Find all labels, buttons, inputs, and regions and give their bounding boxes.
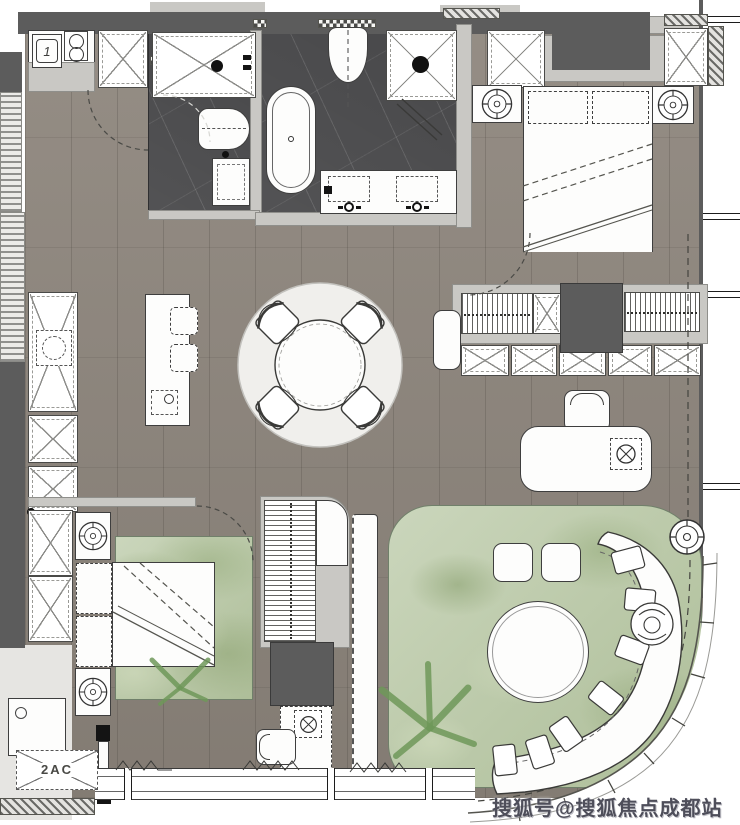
entry-closet [98,30,148,88]
window-left-upper [0,92,22,212]
kitchen-sink-basin: 1 [36,39,58,63]
bed1-closet-left [487,30,545,88]
window-post [124,768,132,800]
faucet-handle-icon [406,206,411,209]
bed-2 [112,562,215,667]
wall-left-lower [0,362,25,648]
wall-hatch-top-mid [443,8,500,19]
bed2-wardrobe [28,576,73,642]
wall-bath2-east [456,24,472,228]
ac-unit-box: 2AC [16,750,98,790]
island-stool [170,344,198,372]
ceiling-lamp-icon [481,88,513,120]
toilet-1-centerline [202,128,246,129]
wall-left-upper [0,52,22,92]
window-mullion [703,213,740,220]
ceiling-lamp-icon [78,521,108,551]
bathtub-drain [288,136,294,142]
niche-check-strip [253,19,267,28]
bed1-pillow [528,91,588,124]
faucet-icon [344,202,354,212]
desk2-stool [256,729,296,765]
wall-hatch-bed1-top [664,14,708,26]
shower-1-drain [211,60,223,72]
kitchen-sink-label: 1 [43,45,50,58]
ottoman [541,543,581,582]
wall-bath1-south [148,210,260,220]
shower-1-valve-icon [243,55,251,60]
door-post [96,725,110,741]
ceiling-lamp-icon [78,677,108,707]
window-post [425,768,433,800]
bidet-inner [217,164,245,200]
faucet-icon [412,202,422,212]
vanity-sink-left [328,176,370,202]
tv-cabinet [560,283,623,353]
ac-unit-label: 2AC [38,763,76,777]
vanity-bench [8,698,66,756]
wall-hatch-bed1-right [708,26,724,86]
island-stool [170,307,198,335]
bed2-nightstand-top [75,512,111,560]
ottoman [493,543,533,582]
divider-panel [352,514,378,786]
vanity-sink-right [396,176,438,202]
desk2-lamp-icon [294,710,322,738]
window-mullion [703,483,740,490]
bed1-nightstand-right [652,86,694,124]
bed2-shelf [28,497,196,507]
faucet-handle-icon [356,206,361,209]
stove-icon [64,31,88,61]
bed1-nightstand-left [472,85,522,123]
cabinet [28,415,78,463]
wall-bed1-headboard [552,12,650,70]
window-left-mid [0,212,25,362]
console-base-cabinet [461,345,509,376]
bed2-headboard-cushion [76,563,112,614]
bed1-closet-right [664,28,708,86]
dining-set [236,281,404,449]
soap-dish-icon [324,186,332,194]
window-post [327,768,335,800]
window-sill-hatch [0,798,95,815]
bed2-wardrobe [28,510,73,576]
window-mullion [703,16,740,23]
watermark: 搜狐号@搜狐焦点成都站 [492,792,723,821]
shower-2-drain [412,56,429,73]
cabinet-dark [270,642,334,706]
wardrobe2-filler [316,500,348,566]
ceiling-lamp-icon [657,89,689,121]
bed2-headboard-cushion [76,616,112,667]
wardrobe-2 [264,500,316,642]
console-base-cabinet [511,345,557,376]
wardrobe-right [624,292,700,332]
floor-plan: 1 [0,0,740,825]
console-base-cabinet [654,345,701,376]
window-band-bottom [95,768,475,800]
coffee-table [487,601,589,703]
wardrobe-left [461,293,533,334]
island-tray [151,390,178,415]
wall-bath2-south [255,212,460,226]
bed2-nightstand-bottom [75,668,111,716]
toilet-1 [198,108,250,150]
window-mullion [703,291,740,298]
faucet-handle-icon [338,206,343,209]
bidet-dot [222,151,229,158]
window-right-strip [703,0,740,596]
desk-lamp-icon [610,438,642,470]
console-cabinet [533,293,561,334]
side-table [433,310,461,370]
shower-1 [152,32,256,98]
bed1-pillow [592,91,649,124]
shower-1-valve-icon [243,65,251,70]
faucet-handle-icon [424,206,429,209]
washer-icon [36,330,72,366]
